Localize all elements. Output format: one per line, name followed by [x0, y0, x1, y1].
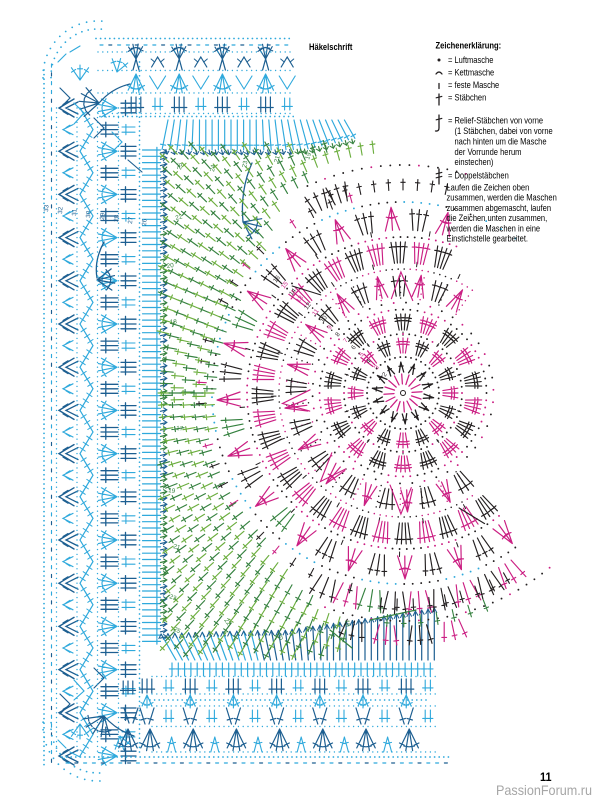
svg-text:PassionForum.ru: PassionForum.ru	[496, 783, 592, 798]
svg-text:einstechen): einstechen)	[455, 156, 494, 167]
svg-text:Häkelschrift: Häkelschrift	[309, 42, 353, 53]
svg-text:Einstichstelle gearbeitet.: Einstichstelle gearbeitet.	[447, 233, 529, 244]
svg-text:32: 32	[57, 206, 65, 214]
svg-text:= Kettmasche: = Kettmasche	[448, 67, 494, 78]
svg-text:26: 26	[141, 218, 149, 226]
svg-text:= Luftmasche: = Luftmasche	[448, 54, 493, 65]
svg-text:= Stäbchen: = Stäbchen	[448, 92, 486, 103]
svg-text:nach hinten um die Masche: nach hinten um die Masche	[455, 135, 547, 146]
svg-text:(1 Stäbchen, dabei von vorne: (1 Stäbchen, dabei von vorne	[455, 125, 553, 136]
svg-text:33: 33	[43, 204, 51, 212]
svg-text:Zeichenerklärung:: Zeichenerklärung:	[436, 41, 502, 52]
svg-text:18: 18	[170, 318, 178, 326]
svg-text:= Doppelstäbchen: = Doppelstäbchen	[448, 170, 509, 181]
svg-text:= feste Masche: = feste Masche	[448, 79, 499, 90]
svg-text:27: 27	[127, 216, 135, 224]
svg-text:29: 29	[99, 212, 107, 220]
svg-text:31: 31	[71, 208, 79, 216]
svg-text:= Relief-Stäbchen von vorne: = Relief-Stäbchen von vorne	[448, 115, 543, 126]
svg-text:30: 30	[85, 210, 93, 218]
svg-text:28: 28	[113, 214, 121, 222]
svg-text:der Vorrunde herum: der Vorrunde herum	[455, 146, 522, 157]
svg-text:17: 17	[176, 425, 184, 433]
